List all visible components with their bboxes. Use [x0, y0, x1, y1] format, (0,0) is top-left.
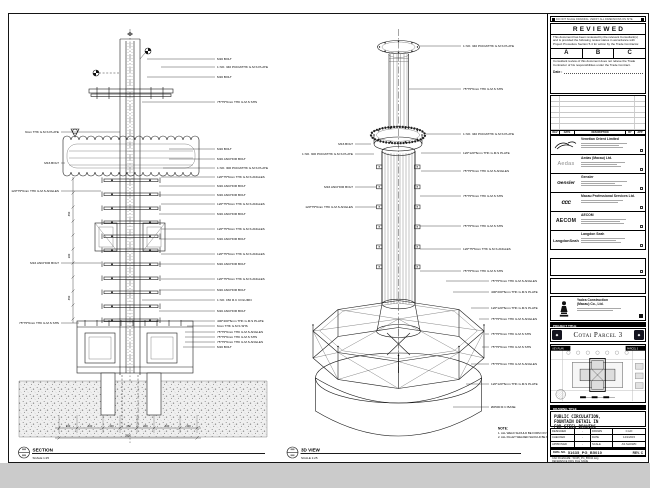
address-microtext: [581, 183, 615, 184]
checkbox: [640, 244, 643, 247]
reviewed-paragraph-1: This document has been reviewed by the r…: [551, 35, 645, 48]
address-microtext: [581, 219, 626, 220]
dim-label: 300: [143, 424, 148, 428]
iso-scale: SCALE 1:25: [301, 456, 318, 460]
address-microtext: [581, 238, 625, 239]
key-plan-parcel-label: PARCEL 3: [627, 347, 639, 350]
revision-row: [551, 124, 645, 130]
callout-label: M16 ANCHOR BOLT: [30, 261, 59, 265]
contractor-block: Yadea Construction (Macau) Co., Ltd.: [550, 296, 646, 321]
strip-text: DO NOT SCALE DRAWING. VERIFY ALL DIMENSI…: [556, 18, 640, 21]
drawing-sheet-page: 450 300 450 300 600 300 450 300 600 300 …: [0, 0, 650, 488]
viewer-background: [0, 463, 650, 488]
address-microtext: [581, 145, 619, 146]
contractor-name: (Macau) Co., Ltd.: [577, 303, 645, 307]
consultant-gensler: Gensler Gensler: [550, 173, 646, 193]
iso-view: [312, 29, 485, 436]
grade-b: B: [583, 49, 615, 58]
address-microtext: [581, 221, 620, 222]
scale-value: AS SHOWN: [613, 442, 645, 448]
callout-label: 120*120*6mm THK G.M.S PLATE: [491, 382, 538, 386]
date-line: [564, 71, 643, 74]
contractor-logo-icon: [551, 297, 577, 320]
callout-label: 400*200*6mm THK G.M.S PLATE: [491, 290, 538, 294]
callout-label: M16 BOLT: [217, 147, 232, 151]
callout-label: 120*75*6mm THK G.M.S ANGLES: [217, 175, 265, 179]
section-view: 450 300 450 300 600 300 450 300 600 300 …: [19, 29, 267, 443]
address-microtext: [581, 181, 627, 182]
callout-label: 6mm THK G.M.S PLATE: [25, 130, 59, 134]
callout-label: 75*75*6mm THK G.M.S SHS: [19, 321, 59, 325]
callout-label: M16 ANCHOR BOLT: [217, 157, 246, 161]
approved-label: APPROVED: [551, 442, 575, 448]
callout-label: Ø2500 R.C BASE: [491, 405, 516, 409]
checkbox: [640, 206, 643, 209]
revision-table: REV DATE DESCRIPTION BY APP: [550, 95, 646, 135]
callout-label: 75*75*6mm THK G.M.S ANGLES: [463, 169, 509, 173]
title-block-fields: DESIGNED - DRAWN C.HO CHECKED - DATE 14/…: [550, 428, 646, 449]
section-callouts: M16 BOLT 1 NO. 340 PCDx6THK G.M.S PLATE …: [11, 57, 268, 349]
consultant-name: Langdon Seah: [581, 233, 643, 237]
reviewed-paragraph-2: Consultant review of this document does …: [551, 59, 645, 69]
address-microtext: [581, 143, 627, 144]
drawing-canvas: 450 300 450 300 600 300 450 300 600 300 …: [9, 14, 547, 462]
consultant-name: Aedas (Macau) Ltd.: [581, 157, 643, 161]
consultant-name: AECOM: [581, 214, 643, 218]
section-scale: SCALE 1:25: [33, 456, 50, 460]
contractor-mark: [639, 314, 643, 318]
callout-label: 120*120*6mm THK G.M.S PLATE: [491, 306, 538, 310]
ccc-logo-icon: ccc: [551, 193, 581, 211]
review-grades: A B C: [551, 48, 645, 59]
dim-label: 300: [66, 424, 71, 428]
callout-label: 6mm THK G.M.S SHS: [217, 324, 248, 328]
v-dim-label: 300: [67, 253, 71, 258]
project-name: Cotai Parcel 3: [573, 331, 622, 339]
callout-label: 75*75*6mm THK G.M.S SHS: [491, 332, 531, 336]
note-block: NOTE: 1. ALL WELD SHOULD BE FORM ON SITE…: [498, 427, 547, 440]
dim-total-label: 2850: [125, 434, 131, 438]
callout-label: 75*75*6mm THK G.M.S ANGLES: [491, 317, 537, 321]
dim-label: 450: [126, 424, 131, 428]
consultant-aecom: AECOM AECOM: [550, 211, 646, 231]
callout-label: 1 NO. 300 PCDx6THK G.M.S PLATE: [302, 152, 353, 156]
callout-label: 1 NO. 340 PCDx6THK G.M.S PLATE: [217, 65, 268, 69]
dwg-no-value: 51635_PG_B5010: [568, 451, 602, 455]
checkbox: [640, 168, 643, 171]
callout-label: M16 BOLT: [217, 75, 232, 79]
callout-label: 120*75*6mm THK G.M.S ANGLES: [305, 205, 353, 209]
key-plan-label: KEY PLAN: [552, 347, 564, 350]
callout-label: 1 NO. 340 PCDx6THK G.M.S PLATE: [463, 44, 514, 48]
callout-label: 120*75*6mm THK G.M.S ANGLES: [463, 247, 511, 251]
consultant-venetian: Venetian Orient Limited: [550, 135, 646, 155]
iso-label: 3D VIEW: [301, 448, 321, 453]
strip-mark: [641, 18, 644, 21]
callout-label: 1 NO. 150 R.C COLUMN: [217, 298, 252, 302]
title-block-panel: DO NOT SCALE DRAWING. VERIFY ALL DIMENSI…: [547, 14, 648, 462]
approved-value: -: [575, 442, 591, 448]
callout-label: 75*75*6mm THK G.M.S ANGLES: [491, 279, 537, 283]
callout-label: 75*75*6mm THK G.M.S ANGLES: [217, 330, 263, 334]
key-plan: KEY PLAN PARCEL 3: [550, 344, 646, 403]
address-microtext: [581, 240, 616, 241]
callout-label: M16 ANCHOR BOLT: [217, 309, 246, 313]
grade-c: C: [614, 49, 645, 58]
stamp-date-row: Date :: [551, 69, 645, 75]
cad-file-rows: CAD FILENAME : 51635_PG_B5010.dwg REFERE…: [550, 456, 646, 462]
callout-label: 75*75*6mm THK G.M.S SHS: [463, 194, 503, 198]
callout-label: M16 BOLT: [44, 161, 59, 165]
address-microtext: [581, 147, 623, 148]
consultant-name: Macau Professional Services Ltd.: [581, 195, 643, 199]
callout-label: 120*120*6mm THK G.M.S PLATE: [463, 151, 510, 155]
address-microtext: [581, 242, 621, 243]
project-title-label: PROJECT TITLE: [550, 322, 646, 327]
callout-label: M16 ANCHOR BOLT: [217, 193, 246, 197]
callout-label: 120*75*6mm THK G.M.S ANGLES: [217, 227, 265, 231]
callout-label: 120*75*6mm THK G.M.S ANGLES: [11, 189, 59, 193]
reference-dwg-row: REFERENCE DWG FILE NAME: [550, 460, 646, 463]
checkbox: [640, 225, 643, 228]
drawing-title-text: PUBLIC CIRCULATION, FOUNTAIN DETAIL IN F…: [550, 411, 646, 427]
note-line: 2. ALL FILLET WELDED SHOULD BE 6mm THK.: [498, 435, 547, 439]
callout-label: 75*75*6mm THK G.M.S ANGLES: [491, 362, 537, 366]
callout-label: M16 BOLT: [217, 57, 232, 61]
consultant-aedas: Aedas Aedas (Macau) Ltd.: [550, 154, 646, 174]
langdon-seah-logo-icon: LangdonSeah: [551, 231, 581, 249]
panel-header-strip: DO NOT SCALE DRAWING. VERIFY ALL DIMENSI…: [550, 16, 646, 22]
callout-label: M16 ANCHOR BOLT: [217, 184, 246, 188]
venetian-logo-icon: [551, 136, 581, 154]
grade-a: A: [551, 49, 583, 58]
consultant-name: Gensler: [581, 176, 643, 180]
date-label: Date :: [553, 70, 562, 74]
reviewed-stamp: REVIEWED This document has been reviewed…: [550, 23, 646, 94]
address-microtext: [577, 310, 613, 311]
callout-label: 120*75*6mm THK G.M.S ANGLES: [217, 277, 265, 281]
dim-label: 600: [165, 424, 170, 428]
checkbox: [640, 187, 643, 190]
callout-label: 120*75*6mm THK G.M.S ANGLES: [217, 202, 265, 206]
callout-label: 75*75*6mm THK G.M.S SHS: [217, 100, 257, 104]
address-microtext: [581, 166, 621, 167]
callout-label: 1 NO. 340 PCDx6THK G.M.S PLATE: [463, 132, 514, 136]
iso-view-label: 3D VIEW SCALE 1:25: [287, 447, 521, 460]
address-microtext: [581, 185, 622, 186]
banner-ornament-icon: ◆: [634, 330, 644, 340]
scale-label: SCALE: [591, 442, 613, 448]
aedas-logo-icon: Aedas: [551, 155, 581, 173]
callout-label: 75*75*6mm THK G.M.S ANGLES: [217, 340, 263, 344]
callout-label: M16 ANCHOR BOLT: [324, 185, 353, 189]
rev-value: REV. C: [633, 451, 643, 455]
drawing-title-label: DRAWING TITLE: [550, 405, 646, 410]
checkbox: [640, 149, 643, 152]
v-dim-label: 450: [67, 295, 71, 300]
callout-label: M16 ANCHOR BOLT: [217, 212, 246, 216]
consultant-macau-professional: ccc Macau Professional Services Ltd.: [550, 192, 646, 212]
callout-label: 75*75*6mm THK G.M.S SHS: [463, 224, 503, 228]
callout-label: M16 BOLT: [338, 142, 353, 146]
callout-label: 1 NO. 300 PCDx6THK G.M.S PLATE: [217, 166, 268, 170]
strip-mark: [552, 18, 555, 21]
callout-label: 400*400*6mm THK G.M.S PLATE: [217, 319, 264, 323]
callout-label: M16 BOLT: [217, 345, 232, 349]
consultant-langdon-seah: LangdonSeah Langdon Seah: [550, 230, 646, 250]
dim-label: 300: [186, 424, 191, 428]
callout-label: 75*75*6mm THK G.M.S SHS: [491, 345, 531, 349]
callout-label: M16 ANCHOR BOLT: [217, 288, 246, 292]
address-microtext: [581, 162, 625, 163]
dim-label: 600: [88, 424, 93, 428]
consultant-name: Venetian Orient Limited: [581, 138, 643, 142]
drawing-number-row: DWG. NO. 51635_PG_B5010 REV. C: [550, 449, 646, 456]
project-banner: ◆ Cotai Parcel 3 ◆: [550, 328, 646, 342]
checkbox: [640, 270, 643, 273]
callout-label: 75*75*6mm THK G.M.S SHS: [217, 335, 257, 339]
callout-label: 75*75*6mm THK G.M.S SHS: [463, 87, 503, 91]
address-microtext: [581, 223, 624, 224]
section-label: SECTION: [33, 448, 54, 453]
address-microtext: [581, 164, 617, 165]
callout-label: M16 ANCHOR BOLT: [217, 237, 246, 241]
callout-label: 120*75*6mm THK G.M.S ANGLES: [217, 252, 265, 256]
v-dim-label: 450: [67, 211, 71, 216]
dim-label: 300: [109, 424, 114, 428]
empty-signoff-box: [550, 278, 646, 294]
reviewed-title: REVIEWED: [551, 24, 645, 35]
section-leader-lines: [61, 59, 215, 347]
address-microtext: [581, 202, 618, 203]
section-view-label: SECTION SCALE 1:25: [19, 447, 266, 460]
address-microtext: [577, 308, 621, 309]
banner-ornament-icon: ◆: [552, 330, 562, 340]
empty-signoff-box: [550, 258, 646, 276]
dwg-no-label: DWG. NO.: [553, 451, 566, 454]
consultant-list: Venetian Orient Limited Aedas Aedas (Mac…: [550, 136, 646, 250]
callout-label: 75*75*6mm THK G.M.S SHS: [463, 269, 503, 273]
callout-label: M16 ANCHOR BOLT: [217, 262, 246, 266]
key-plan-drawing: KEY PLAN PARCEL 3: [551, 345, 645, 402]
sheet: 450 300 450 300 600 300 450 300 600 300 …: [8, 13, 649, 463]
aecom-logo-icon: AECOM: [551, 212, 581, 230]
gensler-logo-icon: Gensler: [551, 174, 581, 192]
address-microtext: [581, 200, 623, 201]
